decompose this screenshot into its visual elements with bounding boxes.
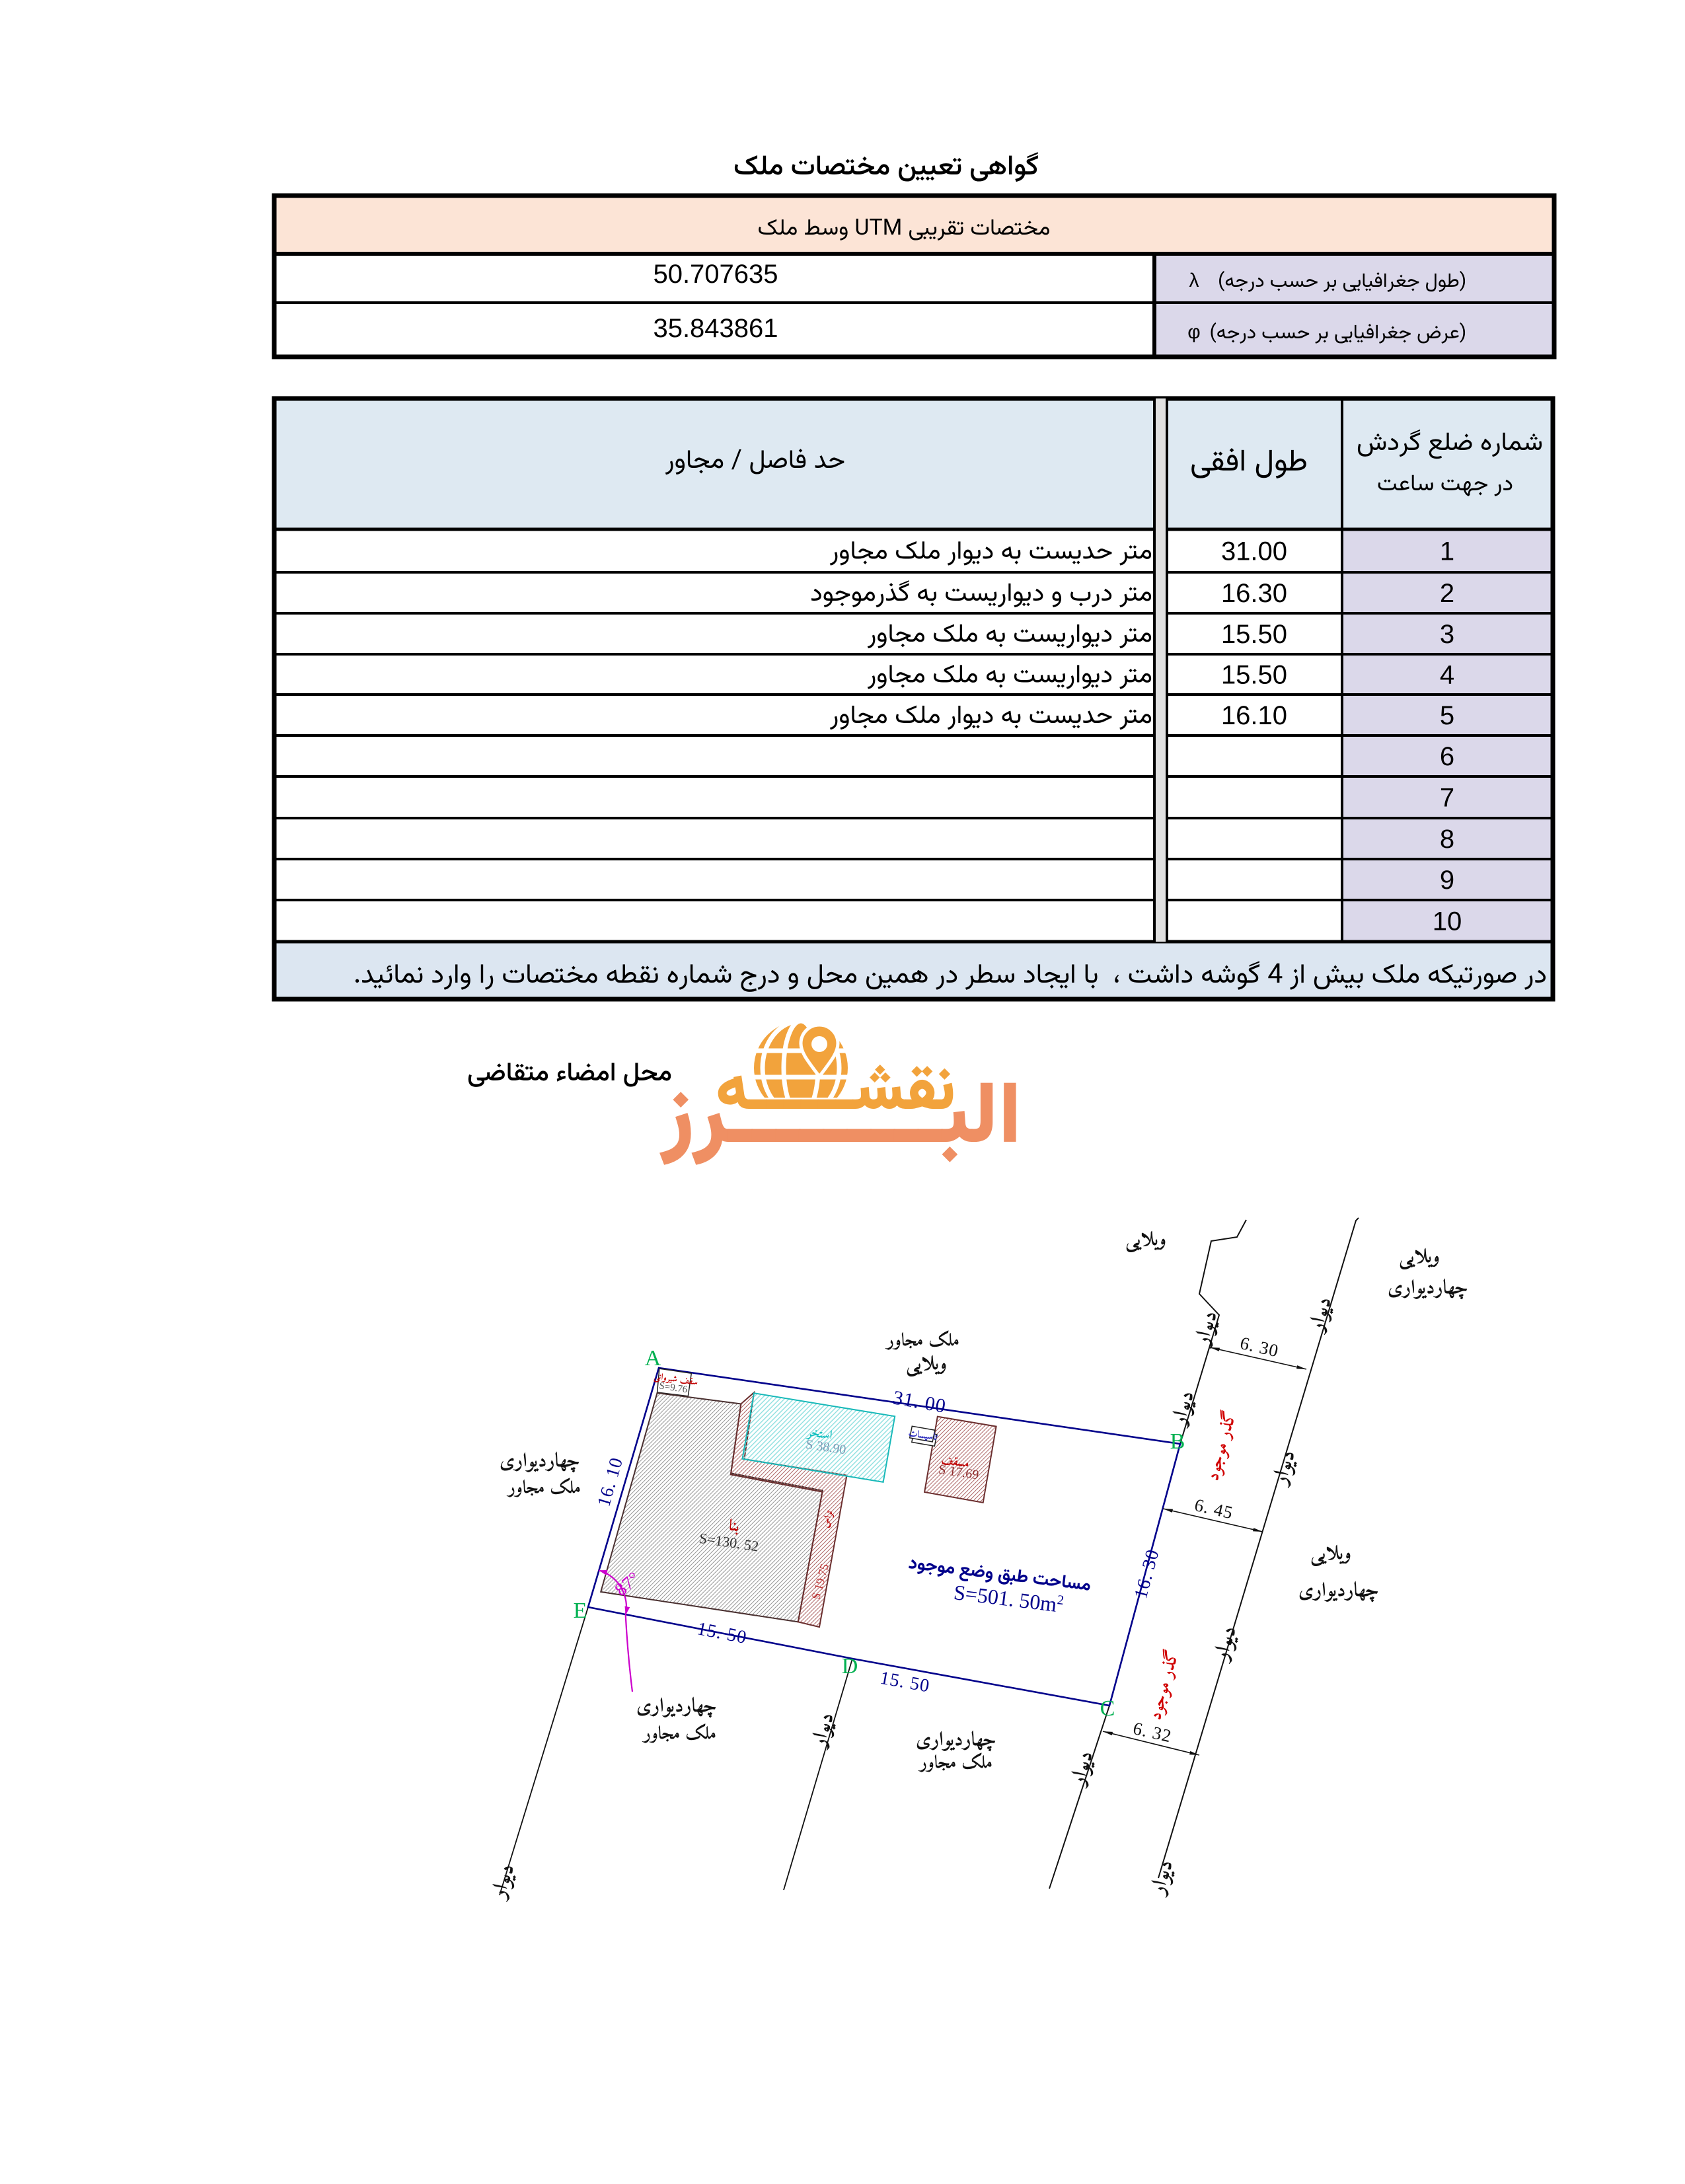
- svg-text:31.00: 31.00: [1221, 537, 1287, 566]
- svg-text:16.30: 16.30: [1221, 579, 1287, 608]
- svg-text:λ: λ: [1189, 270, 1199, 291]
- svg-text:1: 1: [1440, 537, 1454, 566]
- svg-text:35.843861: 35.843861: [653, 314, 778, 343]
- svg-text:4: 4: [1440, 661, 1454, 690]
- svg-text:2: 2: [1440, 579, 1454, 608]
- svg-text:E: E: [574, 1599, 587, 1623]
- svg-text:φ: φ: [1187, 321, 1200, 343]
- svg-text:3: 3: [1440, 620, 1454, 649]
- svg-text:50.707635: 50.707635: [653, 260, 778, 289]
- svg-text:7: 7: [1440, 784, 1454, 813]
- svg-text:15.50: 15.50: [1221, 620, 1287, 649]
- svg-text:8: 8: [1440, 825, 1454, 854]
- svg-text:9: 9: [1440, 866, 1454, 895]
- svg-text:15.50: 15.50: [1221, 661, 1287, 690]
- svg-text:16.10: 16.10: [1221, 701, 1287, 730]
- svg-text:6: 6: [1440, 742, 1454, 771]
- svg-text:5: 5: [1440, 701, 1454, 730]
- svg-text:A: A: [645, 1346, 661, 1371]
- svg-text:C: C: [1100, 1696, 1115, 1721]
- svg-text:10: 10: [1433, 907, 1462, 936]
- svg-text:B: B: [1170, 1429, 1185, 1454]
- svg-text:D: D: [842, 1654, 858, 1678]
